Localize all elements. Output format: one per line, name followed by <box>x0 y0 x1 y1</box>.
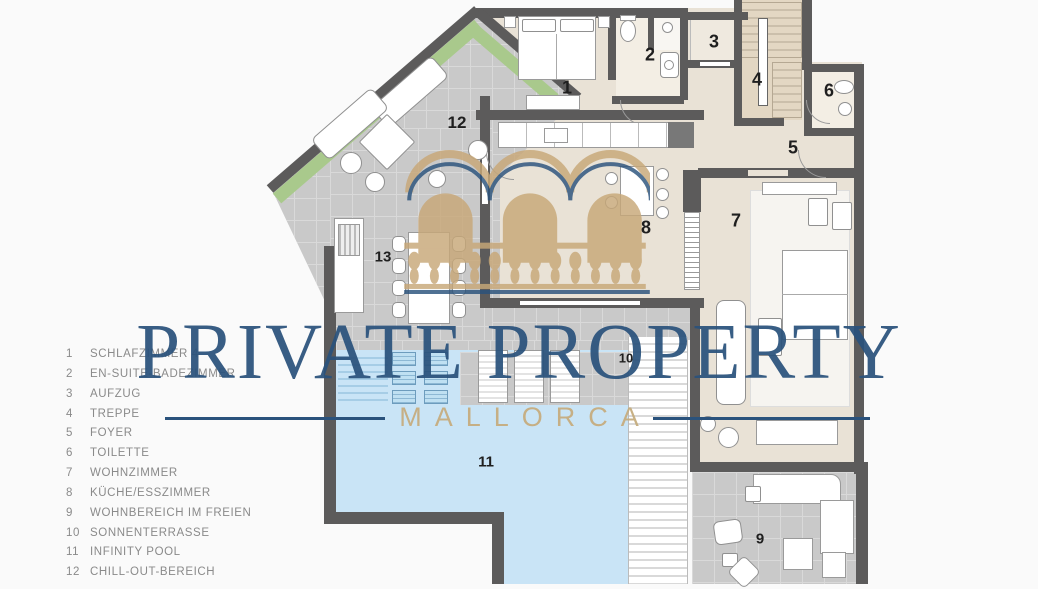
stairs-flight-lower <box>772 62 802 118</box>
room-number-11: 11 <box>478 454 494 471</box>
outdoor-armchair <box>712 518 743 546</box>
room-number-5: 5 <box>788 138 798 159</box>
room-number-8: 8 <box>641 218 651 239</box>
armchair <box>808 198 828 226</box>
wall-segment <box>734 118 784 126</box>
wall-segment <box>324 512 504 524</box>
legend-item: 11INFINITY POOL <box>66 543 251 563</box>
legend-item: 7WOHNZIMMER <box>66 464 251 484</box>
room-number-12: 12 <box>448 113 467 133</box>
sofa-cushion-line <box>782 294 848 295</box>
legend-item-number: 11 <box>66 543 90 563</box>
legend-item-label: WOHNBEREICH IM FREIEN <box>90 504 251 524</box>
fireplace <box>683 170 701 212</box>
dining-chair <box>656 188 669 201</box>
nightstand <box>504 16 516 28</box>
legend-item-number: 9 <box>66 504 90 524</box>
legend-item-label: TOILETTE <box>90 444 150 464</box>
bbq-grill <box>338 224 360 256</box>
kitchen-sink <box>544 128 568 143</box>
watermark-subtitle: MALLORCA <box>0 402 1038 433</box>
armchair <box>832 202 852 230</box>
wall-segment <box>476 110 704 120</box>
sink-basin <box>664 60 674 70</box>
pool-lower-arm <box>504 514 628 584</box>
dining-chair <box>656 206 669 219</box>
room-number-2: 2 <box>645 45 655 66</box>
room-number-6: 6 <box>824 81 834 102</box>
legend-item-number: 10 <box>66 524 90 544</box>
room-number-3: 3 <box>709 32 719 53</box>
legend-item-label: SONNENTERRASSE <box>90 524 210 544</box>
pouf <box>365 172 385 192</box>
brand-logo-arches <box>404 142 650 295</box>
wall-segment <box>856 462 868 584</box>
watermark-title: PRIVATE PROPERTY <box>0 308 1038 398</box>
stairs-flight-upper <box>740 2 802 58</box>
legend-item-label: CHILL-OUT-BEREICH <box>90 563 215 583</box>
toilet-tank <box>620 15 636 21</box>
room-number-4: 4 <box>752 70 762 91</box>
room-number-9: 9 <box>756 531 764 548</box>
wall-segment <box>680 8 688 100</box>
legend-item: 6TOILETTE <box>66 444 251 464</box>
wall-segment <box>802 0 812 70</box>
legend-item-label: INFINITY POOL <box>90 543 181 563</box>
wall-segment <box>492 512 504 584</box>
sink-basin <box>838 102 852 116</box>
nightstand <box>598 16 610 28</box>
legend-item: 10SONNENTERRASSE <box>66 524 251 544</box>
outdoor-table <box>783 538 813 570</box>
kitchen-appliance <box>668 122 694 148</box>
shower-head <box>662 22 673 33</box>
legend-item-label: KÜCHE/ESSZIMMER <box>90 484 211 504</box>
legend-item: 9WOHNBEREICH IM FREIEN <box>66 504 251 524</box>
toilet <box>834 80 854 94</box>
fireplace-flue <box>684 212 700 290</box>
legend-item: 8KÜCHE/ESSZIMMER <box>66 484 251 504</box>
legend-item: 12CHILL-OUT-BEREICH <box>66 563 251 583</box>
sideboard <box>762 182 837 195</box>
pillow <box>522 19 556 32</box>
wall-segment <box>690 462 858 472</box>
legend-item-number: 8 <box>66 484 90 504</box>
legend-item-label: WOHNZIMMER <box>90 464 178 484</box>
toilet <box>620 20 636 42</box>
legend-item-number: 6 <box>66 444 90 464</box>
pouf <box>340 152 362 174</box>
room-number-1: 1 <box>562 78 572 99</box>
wall-segment <box>804 128 862 136</box>
legend-item-number: 7 <box>66 464 90 484</box>
exterior-mask <box>812 0 862 62</box>
room-number-13: 13 <box>375 249 392 266</box>
legend-item-number: 12 <box>66 563 90 583</box>
bed-split-line <box>556 34 557 79</box>
outdoor-sofa <box>820 500 854 554</box>
floor-plan: 12345678910111213 1SCHLAFZIMMER 42EN-SUI… <box>0 0 1038 584</box>
room-number-7: 7 <box>731 211 741 232</box>
elevator-door <box>700 62 730 66</box>
stairs-railing <box>758 18 768 106</box>
foyer-opening <box>748 170 788 176</box>
dining-chair <box>656 168 669 181</box>
outdoor-sofa-seat <box>822 552 846 578</box>
pillow <box>560 19 594 32</box>
sofa-armrest <box>745 486 761 502</box>
sliding-glass-door <box>520 301 640 305</box>
